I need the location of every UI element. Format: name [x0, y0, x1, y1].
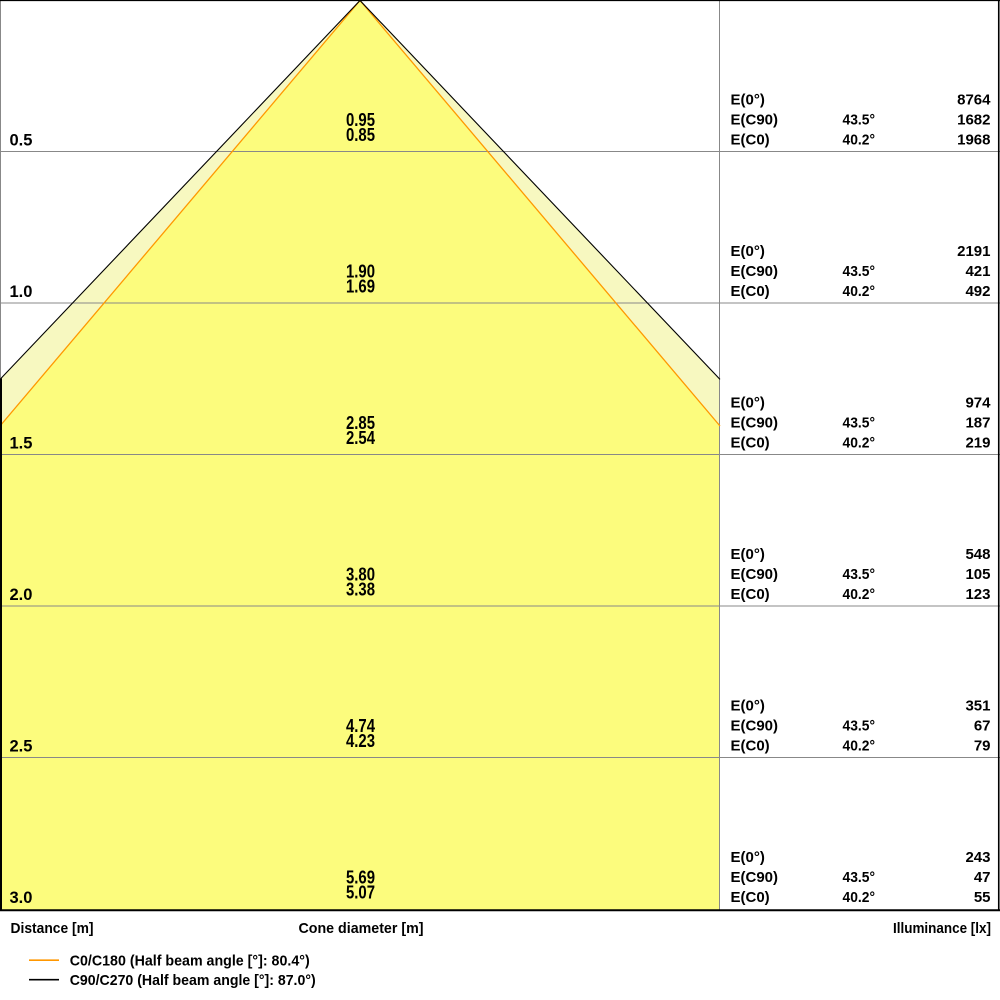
- svg-text:67: 67: [974, 718, 991, 735]
- svg-text:2.5: 2.5: [10, 738, 33, 756]
- svg-text:E(0°): E(0°): [731, 698, 765, 715]
- svg-text:E(C0): E(C0): [731, 586, 770, 603]
- svg-text:Cone diameter [m]: Cone diameter [m]: [299, 920, 424, 937]
- svg-text:2.0: 2.0: [10, 586, 33, 604]
- svg-text:0.85: 0.85: [346, 125, 375, 145]
- svg-text:E(0°): E(0°): [731, 849, 765, 866]
- svg-text:40.2°: 40.2°: [843, 889, 876, 906]
- svg-text:105: 105: [965, 566, 990, 583]
- svg-text:40.2°: 40.2°: [843, 283, 876, 300]
- svg-text:492: 492: [965, 283, 990, 300]
- svg-text:55: 55: [974, 889, 991, 906]
- svg-text:2191: 2191: [957, 243, 990, 260]
- svg-text:548: 548: [965, 546, 990, 563]
- svg-text:E(0°): E(0°): [731, 243, 765, 260]
- svg-text:43.5°: 43.5°: [843, 415, 876, 432]
- svg-text:E(C0): E(C0): [731, 283, 770, 300]
- svg-text:187: 187: [965, 415, 990, 432]
- svg-text:E(C90): E(C90): [731, 718, 779, 735]
- svg-text:40.2°: 40.2°: [843, 132, 876, 149]
- svg-text:4.23: 4.23: [346, 731, 375, 751]
- svg-text:C90/C270 (Half beam angle [°]:: C90/C270 (Half beam angle [°]: 87.0°): [70, 972, 316, 989]
- svg-text:8764: 8764: [957, 92, 991, 109]
- svg-text:C0/C180 (Half beam angle [°]:: C0/C180 (Half beam angle [°]: 80.4°): [70, 953, 310, 970]
- svg-text:47: 47: [974, 869, 991, 886]
- svg-text:219: 219: [965, 435, 990, 452]
- svg-text:421: 421: [965, 263, 990, 280]
- svg-text:5.07: 5.07: [346, 883, 375, 903]
- svg-text:1.5: 1.5: [10, 435, 33, 453]
- svg-text:E(0°): E(0°): [731, 395, 765, 412]
- svg-text:E(C90): E(C90): [731, 869, 779, 886]
- svg-text:1682: 1682: [957, 112, 990, 129]
- svg-text:E(C0): E(C0): [731, 889, 770, 906]
- svg-text:40.2°: 40.2°: [843, 738, 876, 755]
- svg-text:1968: 1968: [957, 132, 990, 149]
- svg-text:0.5: 0.5: [10, 132, 33, 150]
- svg-text:43.5°: 43.5°: [843, 718, 876, 735]
- svg-text:3.38: 3.38: [346, 580, 375, 600]
- svg-text:351: 351: [965, 698, 990, 715]
- svg-text:1.69: 1.69: [346, 277, 375, 297]
- svg-text:E(C90): E(C90): [731, 415, 779, 432]
- svg-text:E(C90): E(C90): [731, 263, 779, 280]
- svg-text:79: 79: [974, 738, 991, 755]
- svg-text:43.5°: 43.5°: [843, 869, 876, 886]
- svg-text:40.2°: 40.2°: [843, 435, 876, 452]
- svg-text:Distance [m]: Distance [m]: [11, 920, 94, 937]
- svg-text:43.5°: 43.5°: [843, 112, 876, 129]
- svg-text:E(0°): E(0°): [731, 92, 765, 109]
- svg-text:974: 974: [965, 395, 991, 412]
- svg-text:2.54: 2.54: [346, 428, 375, 448]
- svg-text:E(C90): E(C90): [731, 112, 779, 129]
- svg-text:E(0°): E(0°): [731, 546, 765, 563]
- svg-text:43.5°: 43.5°: [843, 263, 876, 280]
- svg-text:123: 123: [965, 586, 990, 603]
- svg-text:43.5°: 43.5°: [843, 566, 876, 583]
- svg-text:1.0: 1.0: [10, 283, 33, 301]
- svg-text:243: 243: [965, 849, 990, 866]
- svg-text:Illuminance [lx]: Illuminance [lx]: [893, 920, 991, 937]
- svg-text:E(C90): E(C90): [731, 566, 779, 583]
- svg-text:E(C0): E(C0): [731, 132, 770, 149]
- svg-text:40.2°: 40.2°: [843, 586, 876, 603]
- svg-text:E(C0): E(C0): [731, 435, 770, 452]
- svg-text:3.0: 3.0: [10, 889, 33, 907]
- svg-text:E(C0): E(C0): [731, 738, 770, 755]
